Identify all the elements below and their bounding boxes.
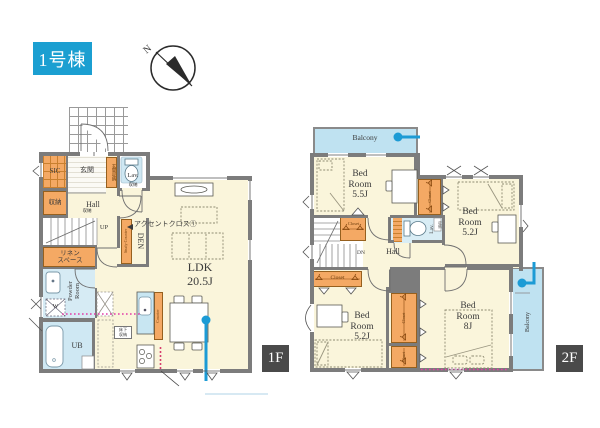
washer-label: W [46, 299, 65, 316]
floorplan-page: 1号棟 N [0, 0, 600, 428]
window [310, 245, 314, 259]
window [448, 368, 464, 372]
wall [43, 245, 97, 247]
floor-fill [146, 190, 150, 369]
window [509, 292, 513, 314]
lav-label-1f: Lav. [120, 172, 146, 180]
counter-label: Counter [154, 296, 162, 336]
wall [509, 267, 513, 372]
bedroom-a-label: Bed Room 5.5J [336, 166, 384, 204]
wall [310, 368, 513, 372]
wall [386, 287, 389, 368]
porch-tiles [69, 107, 128, 153]
den-label: DEN [134, 229, 146, 253]
window [310, 195, 314, 209]
wall [43, 318, 95, 322]
lav-storage-label-2f: 収納 [436, 219, 442, 231]
window [509, 334, 513, 356]
wall [467, 267, 513, 270]
hall-label-2f: Hall [378, 246, 408, 258]
closet-strip-label: Closet [426, 179, 434, 215]
study-counter-label: Study Counter [122, 219, 130, 263]
wall [43, 215, 68, 218]
window [173, 176, 227, 180]
dn-label: DN [354, 249, 368, 257]
wall [412, 240, 445, 243]
window [120, 369, 135, 373]
powder-room-label: Powder Room [66, 271, 82, 311]
wall [310, 153, 314, 372]
wall [390, 215, 445, 218]
window [345, 368, 361, 372]
wall [310, 215, 368, 218]
wall [310, 267, 368, 270]
window [328, 153, 348, 157]
floor1-badge: 1F [262, 345, 289, 372]
closet-small-label: Closet [342, 219, 365, 228]
up-label: UP [96, 223, 112, 232]
wall [441, 179, 443, 215]
linen-label: リネン スペース [43, 248, 97, 266]
closet-column-b-label: Closet [400, 347, 408, 367]
wall [388, 240, 394, 243]
hall-storage-label: 収納 [76, 207, 98, 214]
storage-label: 収納 [43, 191, 67, 215]
wall [442, 215, 445, 245]
wall [389, 343, 417, 346]
closet-wide-label: Closet [313, 272, 362, 285]
floor-storage-label: 床下 収納 [114, 326, 132, 339]
wall [389, 270, 420, 293]
window [446, 175, 462, 179]
ldk-label: LDK 20.5J [172, 261, 228, 288]
wall [417, 267, 420, 368]
building-title-badge: 1号棟 [33, 42, 92, 75]
wall [117, 216, 120, 248]
window [203, 369, 220, 373]
balcony-top-label: Balcony [330, 132, 400, 144]
sic-label: SIC [43, 156, 67, 188]
bedroom-b-label: Bed Room 5.2J [446, 204, 494, 242]
floor2-badge: 2F [556, 345, 583, 372]
ub-label: UB [60, 340, 94, 352]
window [248, 181, 252, 200]
window [248, 240, 252, 260]
bedroom-c-label: Bed Room 5.2J [338, 308, 386, 346]
window [310, 304, 314, 332]
genkan-label: 玄関 [68, 166, 106, 176]
window [519, 205, 523, 227]
wall [414, 157, 417, 215]
compass-north-label: N [139, 41, 157, 59]
window [473, 175, 489, 179]
wall [117, 264, 149, 267]
bedroom-d-label: Bed Room 8J [444, 298, 492, 336]
wall [310, 153, 420, 157]
window [366, 153, 386, 157]
wall [146, 180, 150, 190]
balcony-right-label: Balcony [523, 300, 533, 344]
lav-storage-label-1f: 収納 [120, 181, 146, 188]
wall [248, 176, 252, 373]
wall [43, 267, 97, 269]
wall [95, 288, 97, 318]
lav-shelf [393, 218, 402, 242]
window [39, 297, 43, 317]
genkan-storage-label: 玄関収納 [108, 159, 116, 187]
closet-column-a-label: Closet [400, 296, 408, 340]
compass-icon [151, 46, 195, 90]
window [177, 369, 193, 373]
wall [117, 188, 120, 196]
stairs-area [43, 218, 97, 245]
window [80, 152, 108, 156]
wall [39, 369, 252, 373]
accent-cross-note: アクセントクロス① [134, 220, 208, 229]
